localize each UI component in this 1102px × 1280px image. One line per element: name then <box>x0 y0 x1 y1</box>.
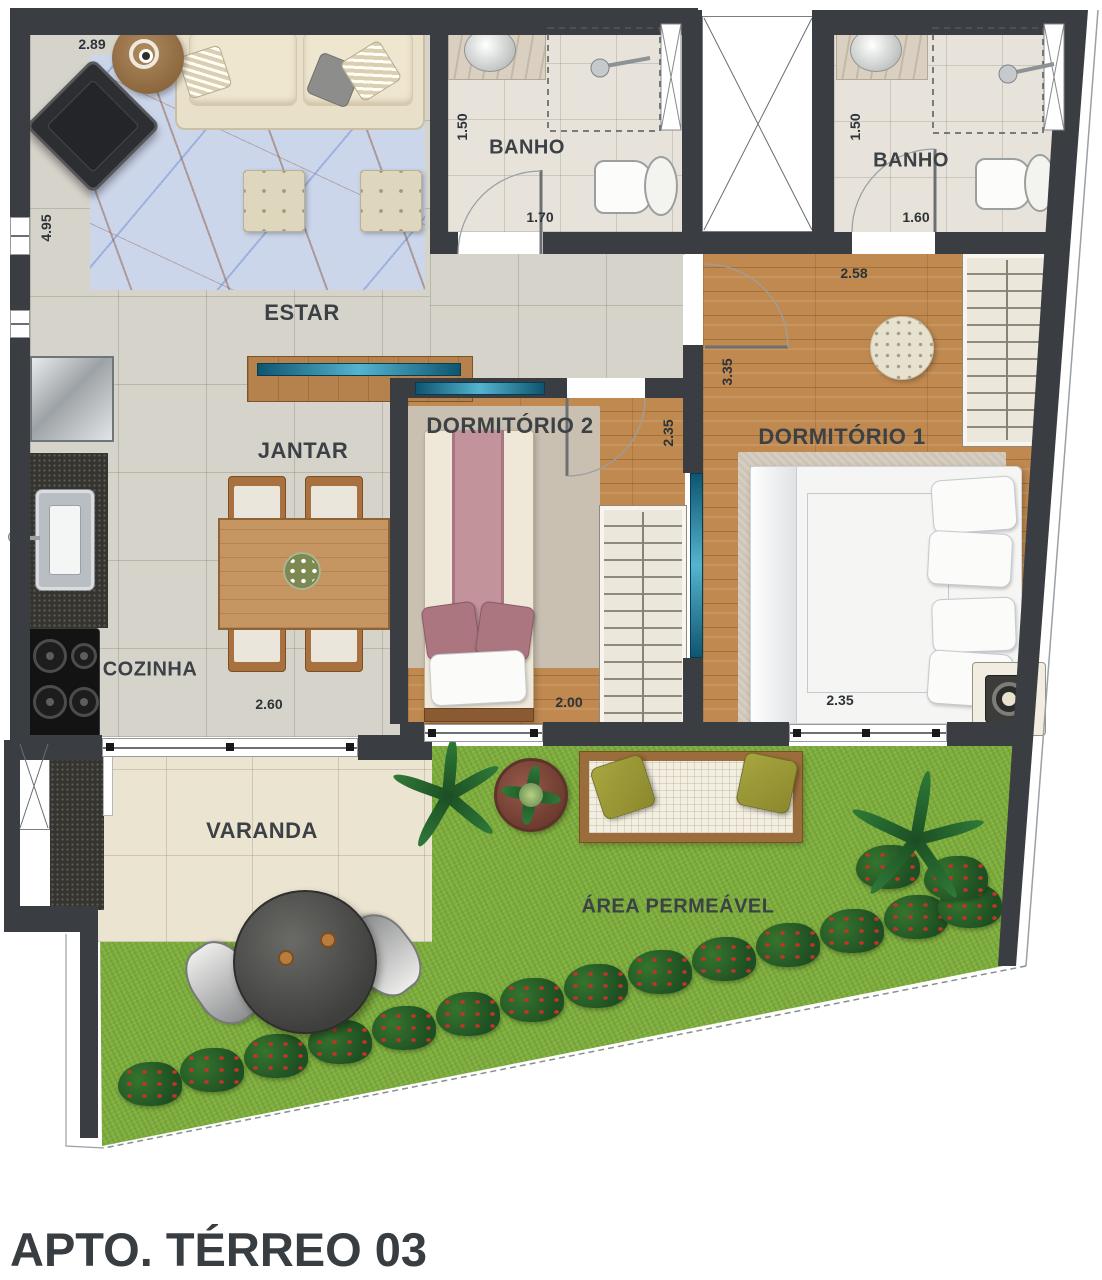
window-glass-bedroom2 <box>415 382 545 395</box>
sideboard-glass <box>257 363 461 376</box>
burner <box>71 643 97 669</box>
dim-estar-width: 2.89 <box>78 36 105 52</box>
wall-dorms-bottom-b <box>543 722 789 746</box>
label-varanda: VARANDA <box>206 818 318 844</box>
wall-garden-left <box>80 928 98 1138</box>
door-gap-bath2 <box>852 232 935 254</box>
burner <box>69 687 99 717</box>
bush <box>692 937 756 981</box>
label-banho2: BANHO <box>873 150 949 173</box>
floor-plan: ESTAR 2.89 4.95 JANTAR COZINHA 2.60 BANH… <box>0 0 1102 1280</box>
burner <box>33 639 67 673</box>
wall-top-right <box>834 10 1080 35</box>
varanda-door-leaf <box>103 748 113 816</box>
label-dormitorio2: DORMITÓRIO 2 <box>426 413 593 439</box>
wall-dorm2-left <box>390 378 408 724</box>
side-table-cup <box>139 49 153 63</box>
window-tick <box>932 729 940 737</box>
window-tick <box>530 729 538 737</box>
dim-cozinha-width: 2.60 <box>255 696 282 712</box>
window-living-left <box>10 217 30 255</box>
window-tick <box>793 729 801 737</box>
burner <box>33 685 67 719</box>
dim-banho2-width: 1.60 <box>902 209 929 225</box>
dim-banho2-height: 1.50 <box>847 113 863 140</box>
bed-footboard <box>424 708 534 722</box>
bedroom1-closet <box>963 254 1051 446</box>
dim-dorm1-bottom: 2.35 <box>826 692 853 708</box>
bush <box>118 1062 182 1106</box>
dim-dorm2-bottom: 2.00 <box>555 694 582 710</box>
ottoman <box>360 170 422 232</box>
dim-estar-height: 4.95 <box>38 214 54 241</box>
bed-pillow <box>927 530 1014 588</box>
wall-left <box>10 8 30 740</box>
bed-pillow <box>931 597 1017 654</box>
door-gap-bedroom1 <box>683 255 703 345</box>
bed-pillow <box>429 650 528 707</box>
bush <box>436 992 500 1036</box>
bush <box>244 1034 308 1078</box>
window-bedroom2 <box>424 724 543 742</box>
dim-banho1-width: 1.70 <box>526 209 553 225</box>
dim-dorm2-height: 2.35 <box>660 419 676 446</box>
wall-dorms-bottom-a <box>400 722 424 746</box>
round-pouf <box>870 316 934 380</box>
shaft <box>702 16 814 232</box>
bush <box>756 923 820 967</box>
door-gap-bedroom2 <box>567 378 645 398</box>
wall-dorm1-top-a <box>702 232 852 254</box>
dim-dorm1-top: 2.58 <box>840 265 867 281</box>
door-tick <box>226 743 234 751</box>
wall-dorms-bottom-c <box>947 722 1032 746</box>
wall-bath1-bottom-a <box>430 232 458 254</box>
plant-center <box>519 783 543 807</box>
wall-bath1-right <box>682 10 702 254</box>
bush <box>628 950 692 994</box>
bath1-toilet-tank <box>644 156 678 216</box>
wall-kitchen-bottom-a <box>10 735 102 760</box>
door-gap-bath1 <box>458 232 543 254</box>
label-area-permeavel: ÁREA PERMEÁVEL <box>582 896 775 919</box>
dim-banho1-height: 1.50 <box>454 113 470 140</box>
fridge <box>30 356 114 442</box>
label-estar: ESTAR <box>264 300 339 326</box>
outdoor-table <box>233 890 377 1034</box>
wall-estar-bath <box>430 8 448 254</box>
bath2-toilet-tank <box>1024 154 1056 212</box>
bath2-toilet <box>975 158 1031 210</box>
label-banho1: BANHO <box>489 137 565 160</box>
bed-pillow <box>930 475 1018 535</box>
label-cozinha: COZINHA <box>103 659 198 682</box>
bush <box>500 978 564 1022</box>
door-tick <box>346 743 354 751</box>
door-tick <box>106 743 114 751</box>
fixture-center <box>1002 692 1016 706</box>
label-dormitorio1: DORMITÓRIO 1 <box>758 424 925 450</box>
duvet-stitch <box>807 493 949 693</box>
wall-left-lower <box>4 740 20 932</box>
wall-dorm1-left-a <box>683 345 703 473</box>
table-knob <box>320 932 336 948</box>
dim-dorm1-height: 3.35 <box>719 358 735 385</box>
bush <box>180 1048 244 1092</box>
window-tick <box>862 729 870 737</box>
bush <box>372 1006 436 1050</box>
wall-shaft-right <box>812 10 834 236</box>
table-knob <box>278 950 294 966</box>
window-glass-bedroom1 <box>690 473 703 658</box>
duvet-fold <box>751 467 797 723</box>
window-living-left2 <box>10 310 30 338</box>
window-tick <box>428 729 436 737</box>
ottoman <box>243 170 305 232</box>
bench-pillow <box>735 751 799 815</box>
wall-dorm1-top-b <box>935 232 1065 254</box>
wall-bath1-bottom-b <box>543 232 702 254</box>
bush <box>820 909 884 953</box>
wall-top <box>10 8 698 35</box>
cooktop <box>24 628 100 738</box>
bedroom2-closet <box>600 506 686 734</box>
bush <box>564 964 628 1008</box>
kitchen-sink <box>36 490 94 590</box>
table-flowers <box>283 552 321 590</box>
label-jantar: JANTAR <box>258 438 349 464</box>
page-title: APTO. TÉRREO 03 <box>10 1222 427 1277</box>
varanda-counter <box>50 742 104 910</box>
